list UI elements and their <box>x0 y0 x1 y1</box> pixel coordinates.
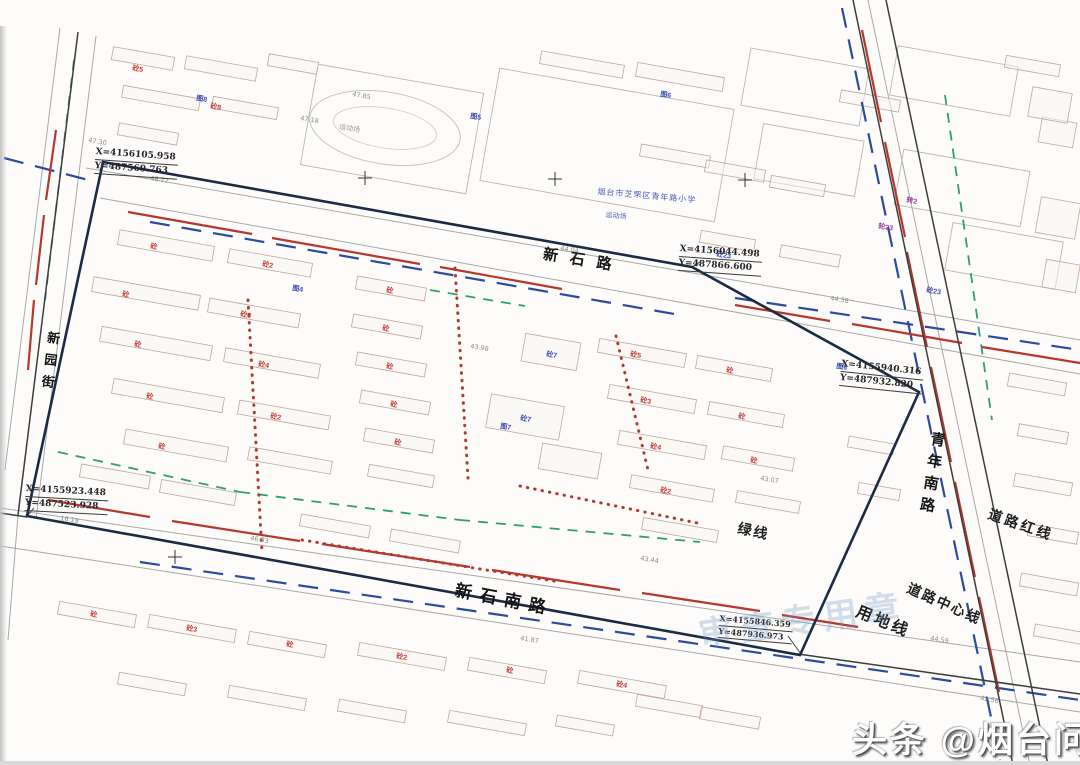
parcel-material-label: 图6 <box>660 89 672 100</box>
red-line-segment <box>955 482 975 577</box>
building-outline <box>112 378 225 412</box>
building-outline <box>92 277 201 311</box>
building-outline <box>123 429 228 462</box>
road-main-line <box>798 654 1080 694</box>
running-track-outer <box>304 81 465 176</box>
building-outline <box>1004 55 1060 76</box>
parcel-material-label: 图8 <box>196 93 208 104</box>
parcel-material-label: 轮23 <box>878 221 894 232</box>
building-outline <box>617 430 706 459</box>
parcel-material-label: 图4 <box>292 283 304 294</box>
red-line-segment <box>862 30 881 122</box>
green-line-dash <box>240 492 460 520</box>
coordinate-callout-4: X=4155923.448 Y=487523.928 <box>25 483 110 515</box>
parcel-material-label: 转2 <box>906 195 918 206</box>
building-outline <box>1035 197 1080 239</box>
red-line-segment <box>128 212 252 234</box>
elevation-value: 41.87 <box>520 634 540 645</box>
red-line-segment <box>982 347 1080 363</box>
building-outline <box>159 480 236 506</box>
building-outline <box>389 529 460 553</box>
red-line-segment <box>885 142 905 237</box>
red-dotted-chain <box>455 268 468 478</box>
red-line-segment <box>36 215 44 285</box>
building-outline <box>555 715 614 736</box>
building-outline <box>847 436 894 455</box>
building-outline <box>538 443 602 479</box>
building-outline <box>1042 259 1080 292</box>
building-outline <box>540 51 625 78</box>
building-outline <box>721 446 794 471</box>
elevation-value: 44.38 <box>830 294 850 305</box>
red-line-segment <box>852 324 962 343</box>
building-outline <box>839 90 900 112</box>
red-line-segment <box>735 305 830 321</box>
building-outline <box>267 54 318 75</box>
elevation-value: 42.56 <box>980 694 1000 705</box>
building-outline <box>1033 624 1080 644</box>
building-outline <box>248 447 333 474</box>
building-outline <box>299 514 370 538</box>
label-sports-field: 运动场 <box>605 210 627 222</box>
building-outline <box>337 699 406 723</box>
parcel-material-label: 砼23 <box>926 285 942 296</box>
toutiao-watermark: 头条 @烟台问家 <box>852 712 1080 763</box>
building-outline <box>184 56 257 81</box>
building-outline <box>1019 573 1078 596</box>
building-outline <box>735 491 800 514</box>
green-line-dash <box>430 290 525 306</box>
building-outline <box>117 672 186 696</box>
coordinate-callout-2: X=4156044.498 Y=487866.600 <box>678 243 763 277</box>
building-outline <box>630 475 715 502</box>
building-outline <box>597 338 686 367</box>
building-outline <box>607 384 696 413</box>
elevation-value: 43.44 <box>640 554 660 565</box>
elevation-value: 43.07 <box>760 474 780 485</box>
building-outline <box>228 685 307 710</box>
parcel-outline <box>741 48 869 126</box>
scanned-planning-map: 47.8547.3043.9844.0443.4441.8746.9348.77… <box>0 0 1080 765</box>
parcel-outline <box>300 64 483 194</box>
building-outline <box>635 694 702 717</box>
building-outline <box>237 400 330 430</box>
building-outline <box>695 356 772 382</box>
building-outline <box>1007 373 1066 396</box>
road-edge-line <box>8 515 18 640</box>
building-outline <box>707 402 784 428</box>
building-outline <box>1013 473 1072 496</box>
building-outline <box>100 326 213 360</box>
road-main-line <box>18 32 78 515</box>
building-outline <box>639 144 710 168</box>
building-outline <box>1028 87 1073 123</box>
elevation-value: 43.98 <box>470 342 490 353</box>
building-outline <box>642 517 719 542</box>
building-outline <box>857 482 900 500</box>
red-line-segment <box>46 130 56 200</box>
building-outline <box>769 175 825 196</box>
building-outline <box>224 348 321 378</box>
red-dotted-chain <box>248 300 262 552</box>
building-outline <box>211 96 278 119</box>
coordinate-callout-1: X=4156105.958 Y=487569.763 <box>94 146 179 180</box>
building-outline <box>207 298 300 328</box>
building-outline <box>635 62 724 91</box>
road-edge-line <box>36 36 96 519</box>
green-line-dash <box>945 95 992 420</box>
building-outline <box>79 464 150 489</box>
building-outline <box>117 230 214 261</box>
red-line-segment <box>28 300 34 370</box>
building-outline <box>1017 424 1068 445</box>
parcel-outline <box>894 149 1030 226</box>
building-outline <box>699 707 760 729</box>
building-outline <box>779 245 840 267</box>
red-line-segment <box>172 521 300 541</box>
elevation-value: 47.18 <box>300 114 320 125</box>
scan-edge-left <box>0 26 7 765</box>
elevation-value: 44.59 <box>930 634 950 645</box>
building-outline <box>448 710 527 735</box>
elevation-value: 47.85 <box>352 90 372 101</box>
building-outline <box>122 85 201 110</box>
building-outline <box>117 123 178 145</box>
building-outline <box>367 464 434 487</box>
